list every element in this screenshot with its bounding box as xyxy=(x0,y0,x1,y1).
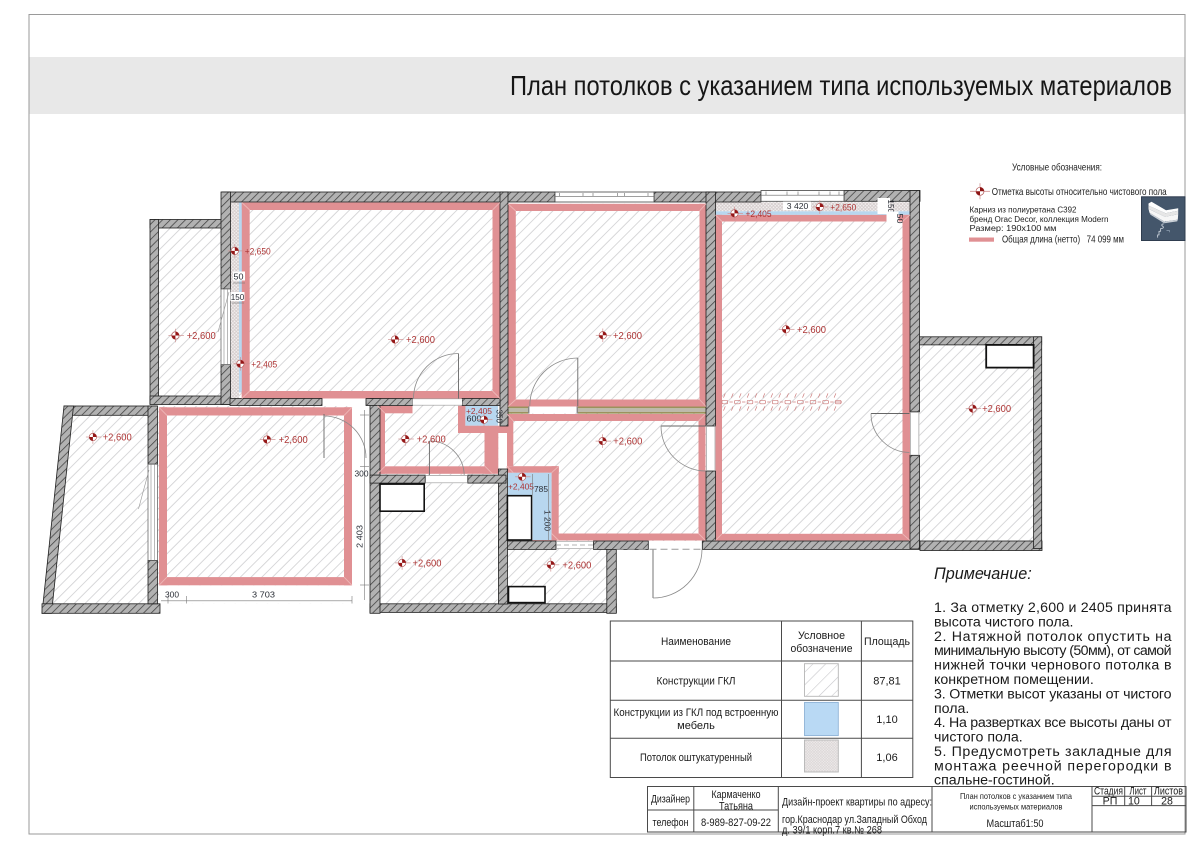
svg-text:Условное: Условное xyxy=(798,630,845,642)
svg-text:1,06: 1,06 xyxy=(876,752,897,764)
svg-text:87,81: 87,81 xyxy=(873,676,901,688)
svg-text:28: 28 xyxy=(1161,795,1173,807)
svg-text:телефон: телефон xyxy=(653,817,689,829)
svg-text:+2,600: +2,600 xyxy=(187,331,216,342)
svg-text:1,10: 1,10 xyxy=(876,714,897,726)
svg-text:+2,600: +2,600 xyxy=(613,331,642,342)
svg-text:1 200: 1 200 xyxy=(543,510,553,531)
svg-text:Условные обозначения:: Условные обозначения: xyxy=(1012,162,1102,174)
svg-text:300: 300 xyxy=(355,469,369,479)
svg-text:3 703: 3 703 xyxy=(252,590,275,600)
svg-text:150: 150 xyxy=(886,200,896,214)
svg-text:обозначение: обозначение xyxy=(791,643,853,655)
svg-text:Дизайн-проект квартиры по адре: Дизайн-проект квартиры по адресу: xyxy=(782,797,932,809)
svg-text:+2,405: +2,405 xyxy=(508,482,534,492)
svg-text:+2,600: +2,600 xyxy=(413,558,442,569)
svg-text:3. Отметки высот указаны от чи: 3. Отметки высот указаны от чистого xyxy=(934,686,1172,702)
svg-text:+2,600: +2,600 xyxy=(797,325,826,336)
svg-text:Наименование: Наименование xyxy=(661,636,731,648)
svg-text:РП: РП xyxy=(1103,795,1118,807)
svg-text:д. 39/1 корп.7 кв.№ 268: д. 39/1 корп.7 кв.№ 268 xyxy=(782,825,882,837)
svg-text:350: 350 xyxy=(495,410,505,424)
svg-text:+2,650: +2,650 xyxy=(245,245,271,256)
svg-text:+2,405: +2,405 xyxy=(746,208,772,219)
svg-text:+2,650: +2,650 xyxy=(830,202,856,213)
svg-text:+2,600: +2,600 xyxy=(279,435,308,446)
svg-text:План потолков с указанием типа: План потолков с указанием типа используе… xyxy=(510,70,1172,101)
svg-text:Примечание:: Примечание: xyxy=(934,565,1032,583)
svg-text:10: 10 xyxy=(1128,795,1140,807)
svg-text:8-989-827-09-22: 8-989-827-09-22 xyxy=(701,817,771,829)
svg-text:+2,600: +2,600 xyxy=(613,437,642,448)
svg-text:Отметка высоты относительно чи: Отметка высоты относительно чистового по… xyxy=(992,187,1167,198)
svg-text:600: 600 xyxy=(467,414,482,424)
svg-text:Татьяна: Татьяна xyxy=(719,801,753,813)
svg-text:Конструкции ГКЛ: Конструкции ГКЛ xyxy=(657,676,736,688)
svg-text:Дизайнер: Дизайнер xyxy=(651,793,690,805)
svg-text:50: 50 xyxy=(895,214,905,224)
svg-text:Кармаченко: Кармаченко xyxy=(712,789,761,801)
svg-text:используемых материалов: используемых материалов xyxy=(970,802,1063,812)
svg-text:Размер: 190х100 мм: Размер: 190х100 мм xyxy=(970,223,1057,233)
svg-text:2 403: 2 403 xyxy=(355,525,365,548)
svg-text:+2,600: +2,600 xyxy=(417,435,446,446)
svg-text:50: 50 xyxy=(234,272,244,282)
svg-text:Потолок оштукатуренный: Потолок оштукатуренный xyxy=(640,752,752,764)
svg-text:300: 300 xyxy=(165,590,179,600)
svg-text:+2,600: +2,600 xyxy=(982,404,1011,415)
svg-text:мебель: мебель xyxy=(677,720,715,732)
svg-text:+2,600: +2,600 xyxy=(406,335,435,346)
svg-text:785: 785 xyxy=(534,484,548,494)
svg-text:Конструкции из ГКЛ под встроен: Конструкции из ГКЛ под встроенную xyxy=(614,707,779,719)
svg-text:Площадь: Площадь xyxy=(864,636,910,648)
svg-text:+2,600: +2,600 xyxy=(103,433,132,444)
svg-text:+2,600: +2,600 xyxy=(562,560,591,571)
svg-text:3 420: 3 420 xyxy=(787,201,809,211)
svg-text:План потолков с указанием типа: План потолков с указанием типа xyxy=(960,791,1072,801)
svg-text:Общая длина (нетто) 74 099 м: Общая длина (нетто) 74 099 мм xyxy=(1002,234,1124,246)
svg-text:150: 150 xyxy=(231,292,245,302)
svg-text:Масштаб1:50: Масштаб1:50 xyxy=(987,818,1044,830)
svg-text:+2,405: +2,405 xyxy=(251,358,277,369)
